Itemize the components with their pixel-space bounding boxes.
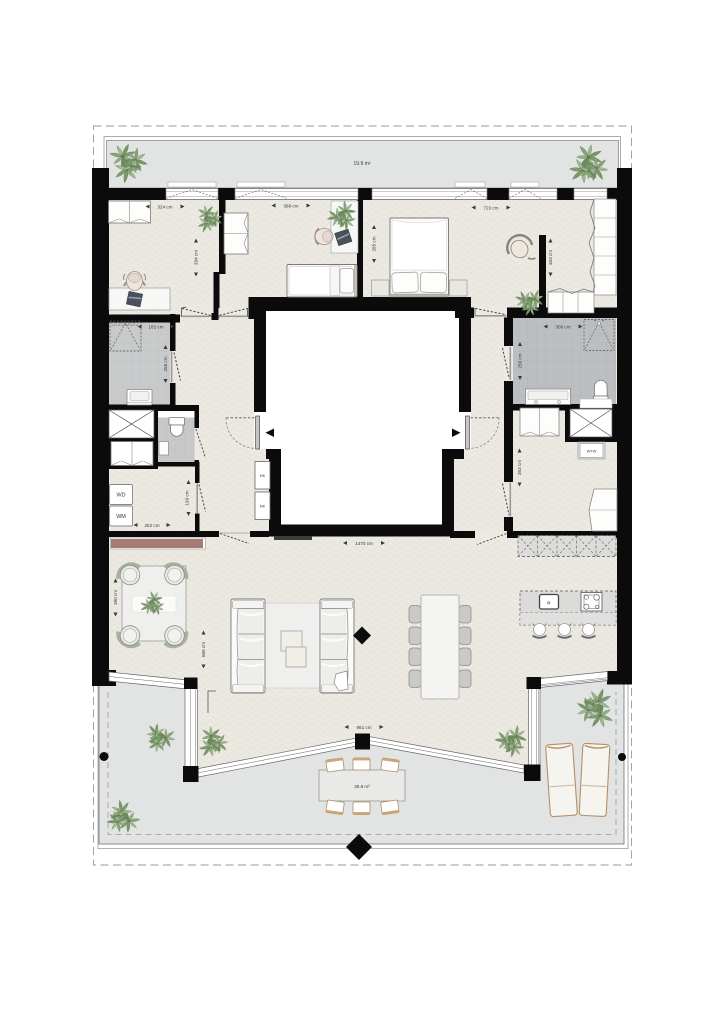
svg-text:193 cm: 193 cm bbox=[185, 490, 190, 505]
svg-text:MK: MK bbox=[260, 474, 266, 478]
svg-text:353 cm: 353 cm bbox=[517, 460, 522, 475]
svg-text:182 cm: 182 cm bbox=[148, 324, 163, 329]
svg-text:39.8 m²: 39.8 m² bbox=[354, 784, 370, 789]
svg-text:WTW: WTW bbox=[587, 449, 597, 454]
svg-text:285 cm: 285 cm bbox=[372, 236, 377, 251]
svg-text:333 cm: 333 cm bbox=[548, 250, 553, 265]
svg-text:252 cm: 252 cm bbox=[144, 523, 159, 528]
svg-text:723 cm: 723 cm bbox=[483, 205, 498, 210]
svg-text:256 cm: 256 cm bbox=[518, 353, 523, 368]
svg-text:334 cm: 334 cm bbox=[194, 250, 199, 265]
svg-text:389 cm: 389 cm bbox=[283, 203, 298, 208]
svg-text:19.9 m²: 19.9 m² bbox=[354, 161, 371, 167]
svg-text:MK: MK bbox=[260, 505, 266, 509]
svg-text:666 cm: 666 cm bbox=[201, 642, 206, 657]
svg-text:300 cm: 300 cm bbox=[555, 324, 570, 329]
svg-text:1470 cm: 1470 cm bbox=[355, 541, 373, 546]
svg-text:324 cm: 324 cm bbox=[157, 204, 172, 209]
svg-text:WD: WD bbox=[117, 493, 126, 499]
svg-text:390 cm: 390 cm bbox=[113, 590, 118, 605]
svg-text:WM: WM bbox=[116, 514, 126, 520]
svg-text:256 cm: 256 cm bbox=[163, 356, 168, 371]
svg-text:961 cm: 961 cm bbox=[356, 725, 371, 730]
